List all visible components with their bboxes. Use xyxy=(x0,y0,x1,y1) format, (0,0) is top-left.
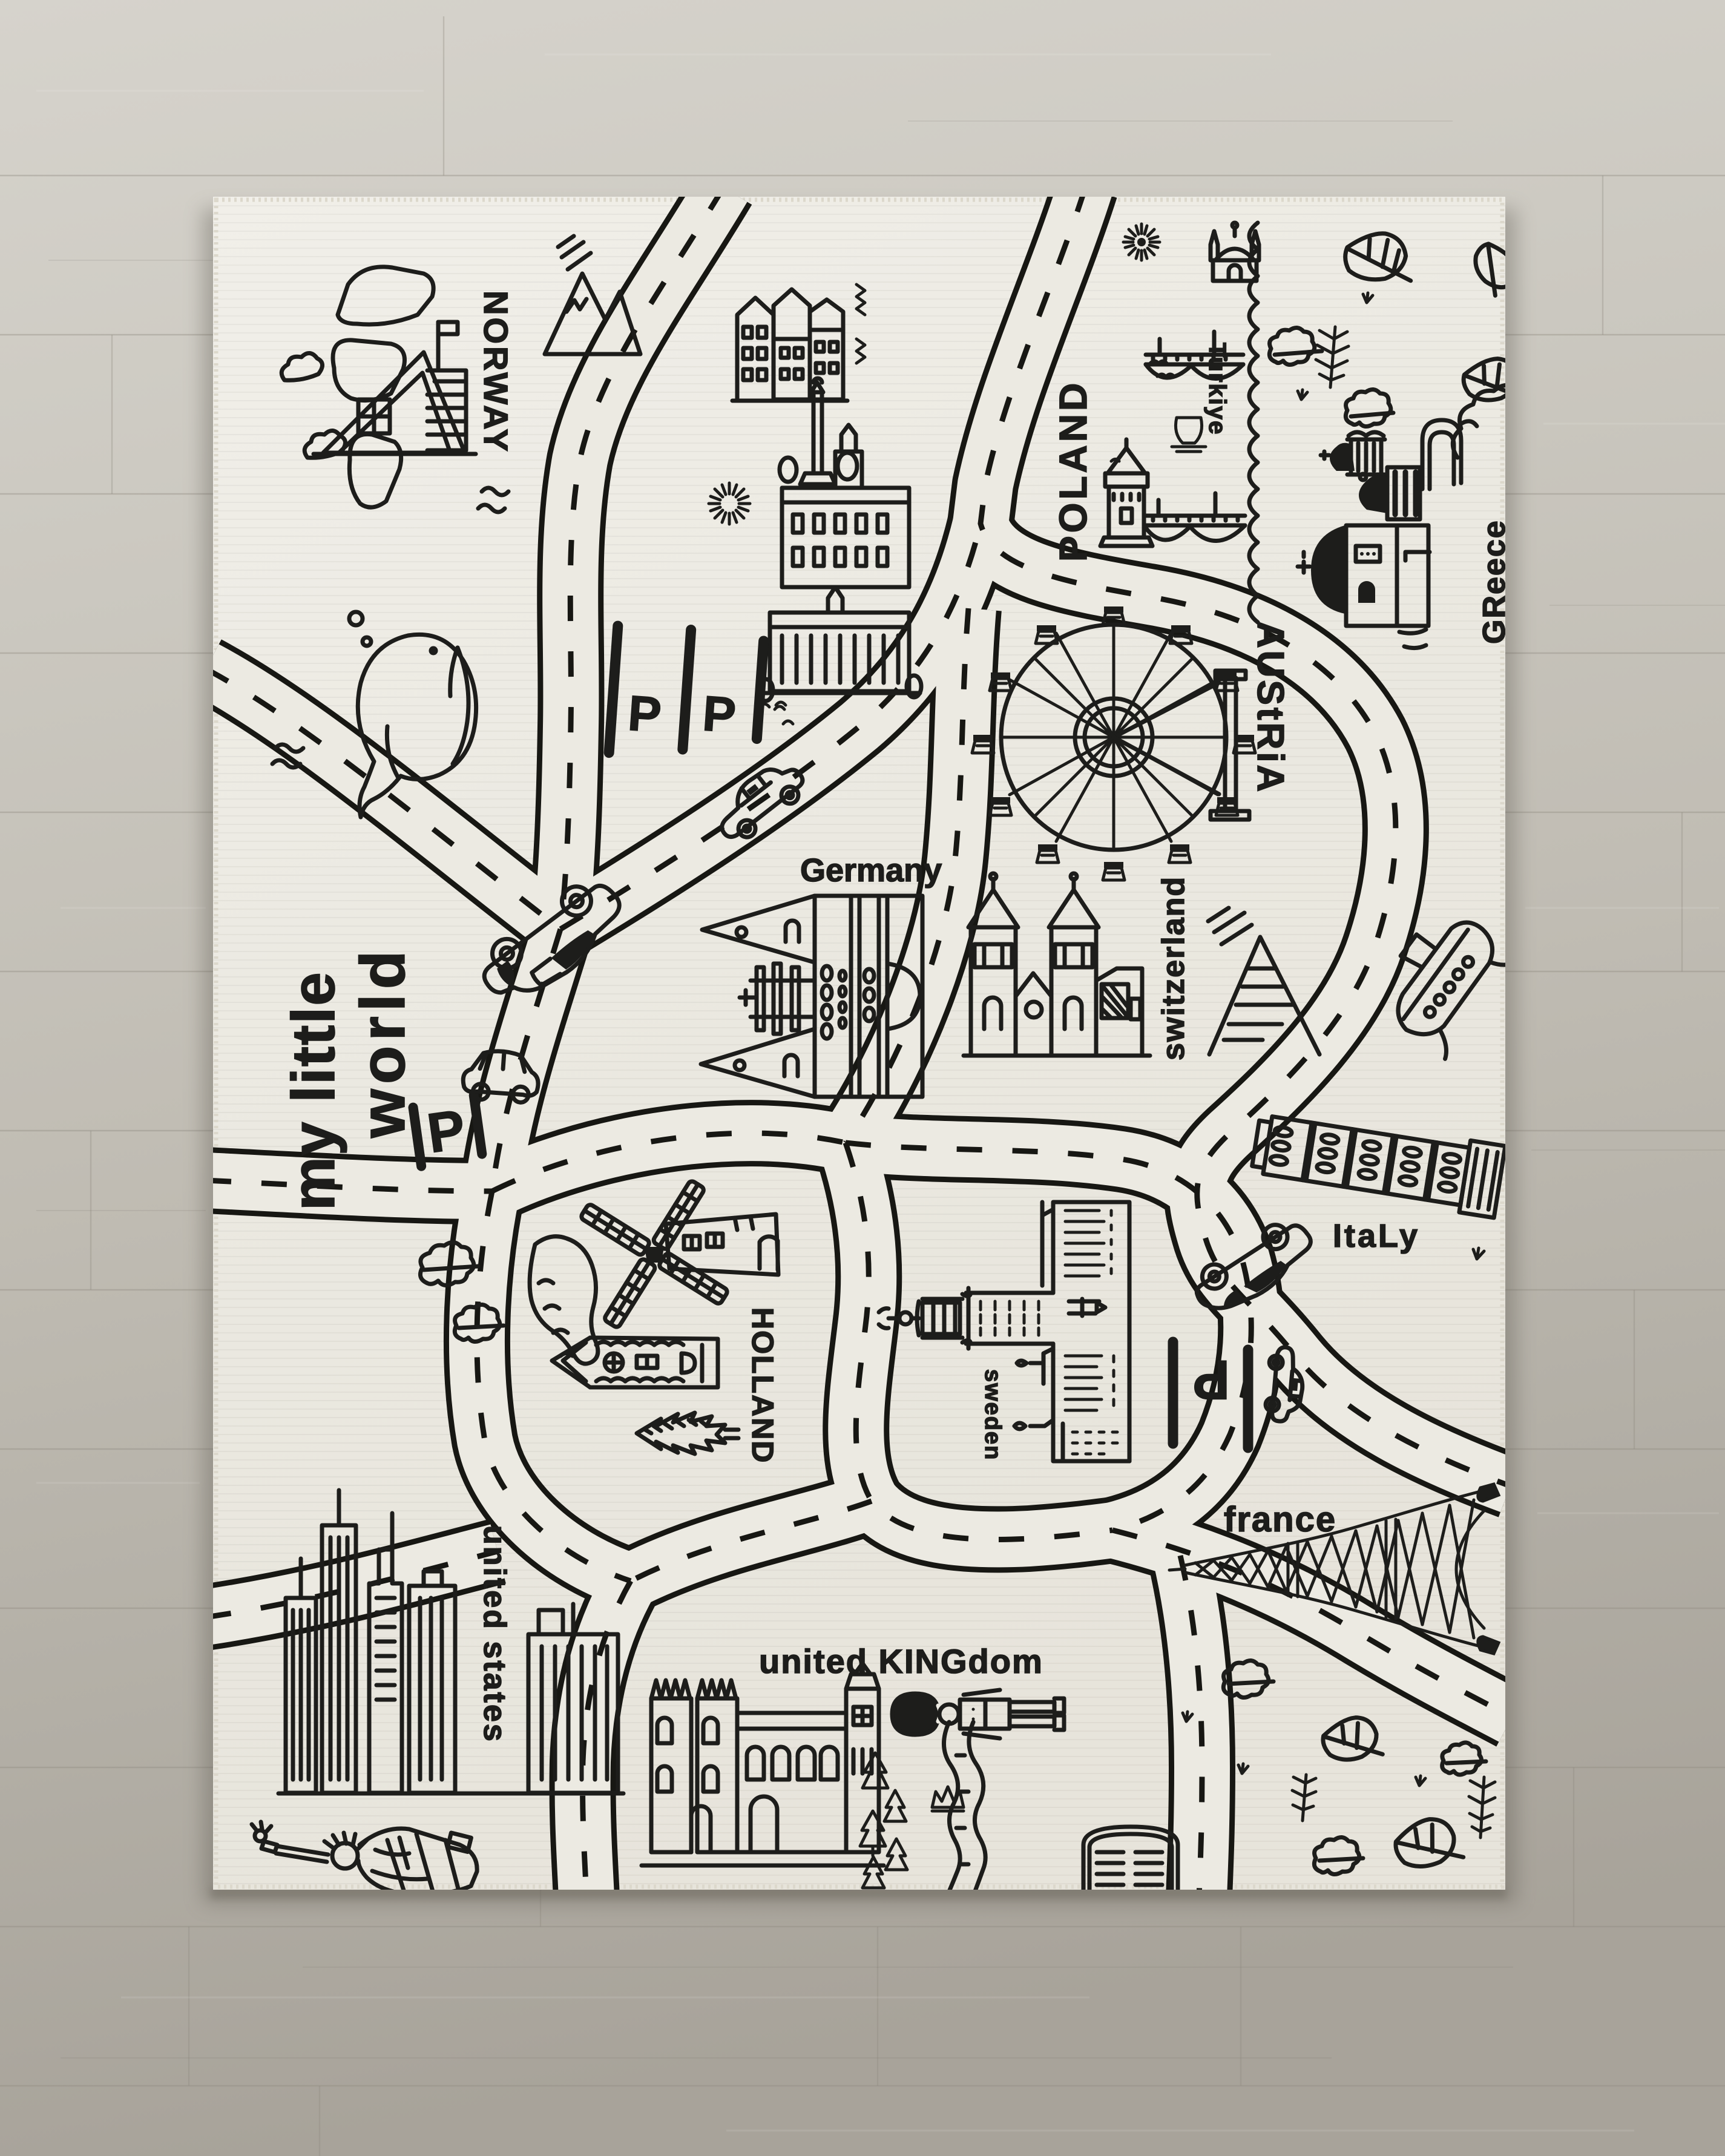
svg-text:united KINGdom: united KINGdom xyxy=(759,1642,1043,1680)
svg-text:HOLLAND: HOLLAND xyxy=(746,1307,780,1464)
svg-text:AUStRiA: AUStRiA xyxy=(1249,621,1291,794)
svg-text:my little: my little xyxy=(280,971,347,1211)
svg-text:P: P xyxy=(701,686,738,743)
svg-text:NORWAY: NORWAY xyxy=(477,291,515,454)
svg-text:switzerland: switzerland xyxy=(1156,876,1191,1060)
svg-text:france: france xyxy=(1224,1500,1336,1539)
svg-text:world: world xyxy=(348,946,418,1139)
svg-text:sweden: sweden xyxy=(980,1369,1005,1461)
svg-text:POLAND: POLAND xyxy=(1051,380,1095,562)
svg-text:P: P xyxy=(1193,1349,1230,1410)
svg-text:P: P xyxy=(626,686,663,743)
svg-text:ItaLy: ItaLy xyxy=(1333,1218,1420,1254)
svg-text:Germany: Germany xyxy=(800,852,942,889)
svg-text:united states: united states xyxy=(477,1525,512,1743)
